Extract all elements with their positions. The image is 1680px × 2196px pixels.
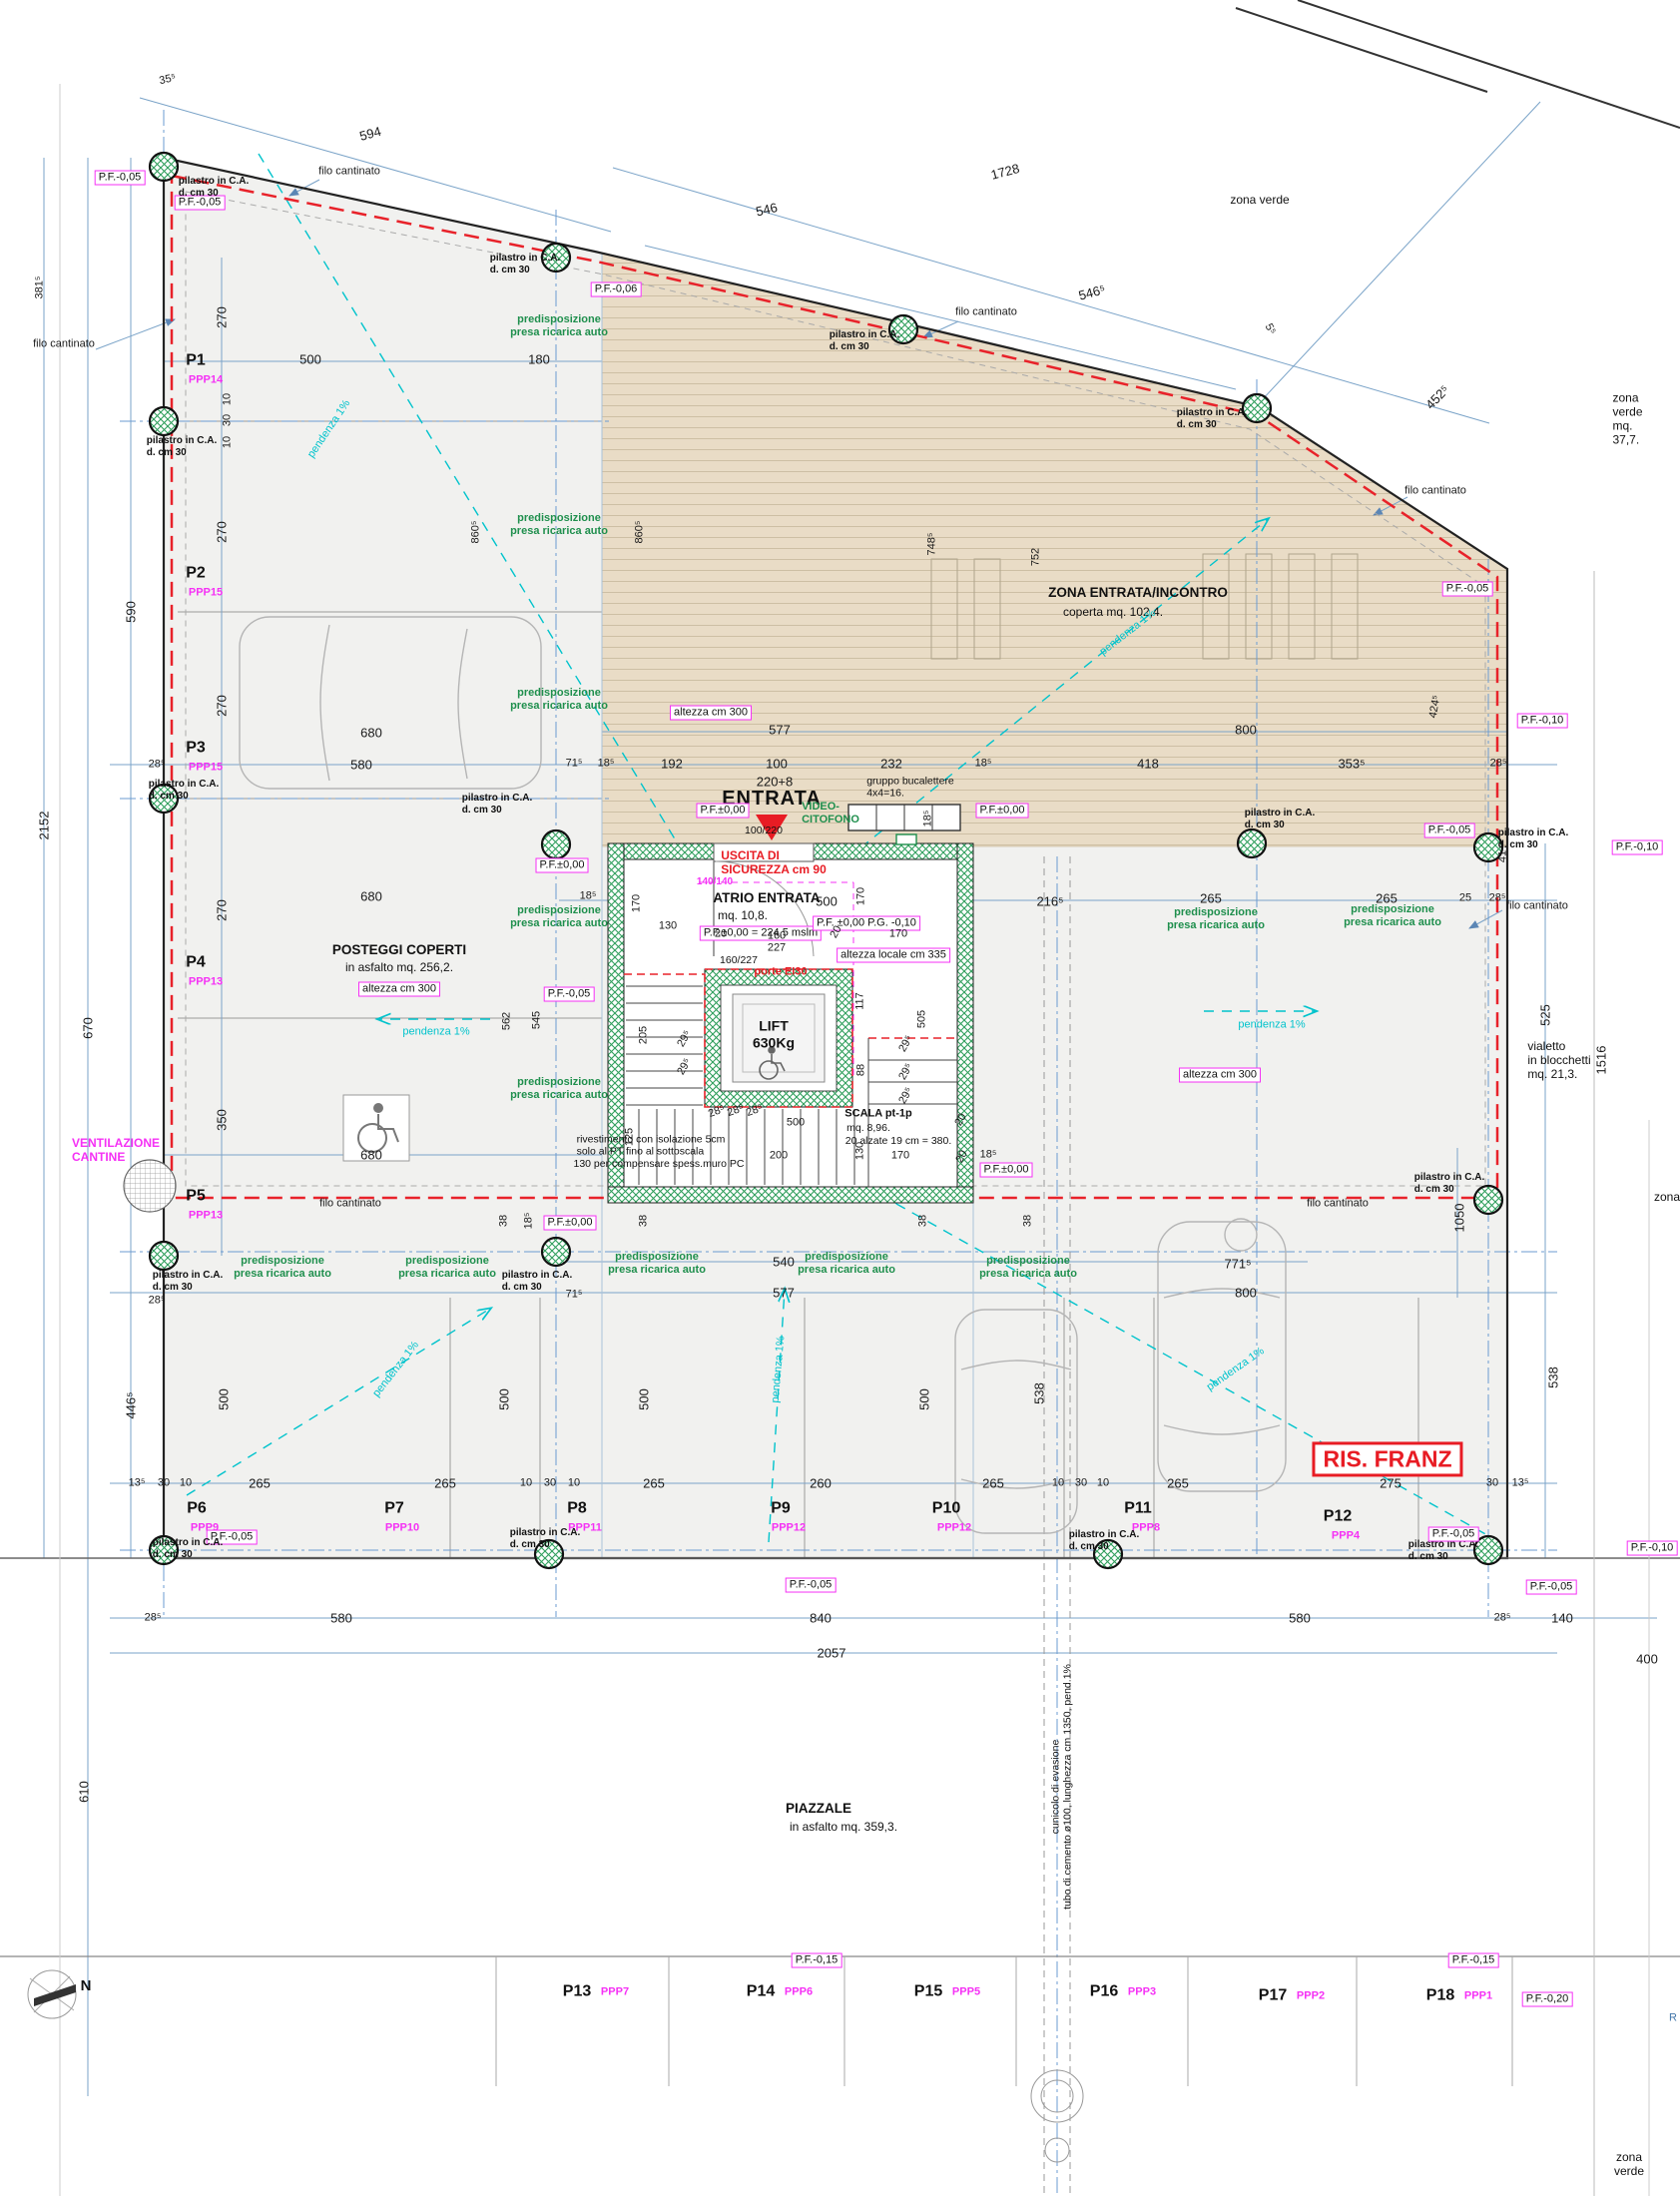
pillar-icon <box>150 1242 178 1270</box>
pillar-icon <box>1474 1186 1502 1214</box>
pillar-icon <box>542 1238 570 1266</box>
pillar-icon <box>150 407 178 435</box>
handicap-stall <box>343 1095 409 1161</box>
pillar-icon <box>1094 1540 1122 1568</box>
pillar-icon <box>150 153 178 181</box>
road-edge <box>1236 0 1680 128</box>
floor-plan-drawing <box>0 0 1680 2196</box>
pillar-icon <box>542 244 570 272</box>
mailbox-group <box>848 805 960 830</box>
pillar-icon <box>889 315 917 343</box>
pillar-icon <box>1238 829 1266 857</box>
pillar-icon <box>1474 833 1502 861</box>
pillar-icon <box>150 785 178 813</box>
pillar-icon <box>542 830 570 858</box>
north-compass-icon <box>28 1970 76 2018</box>
pillar-icon <box>535 1540 563 1568</box>
pillar-icon <box>150 1536 178 1564</box>
pillar-icon <box>1474 1536 1502 1564</box>
video-citofono-icon <box>896 834 916 844</box>
floor-plan-page: 35⁵5941728546546⁵452⁵5⁵zona verdezona ve… <box>0 0 1680 2196</box>
ventilation-grate <box>124 1160 176 1212</box>
zona-entrata-deck <box>602 253 1507 846</box>
building-core <box>608 805 973 1203</box>
pillar-icon <box>1243 394 1271 422</box>
